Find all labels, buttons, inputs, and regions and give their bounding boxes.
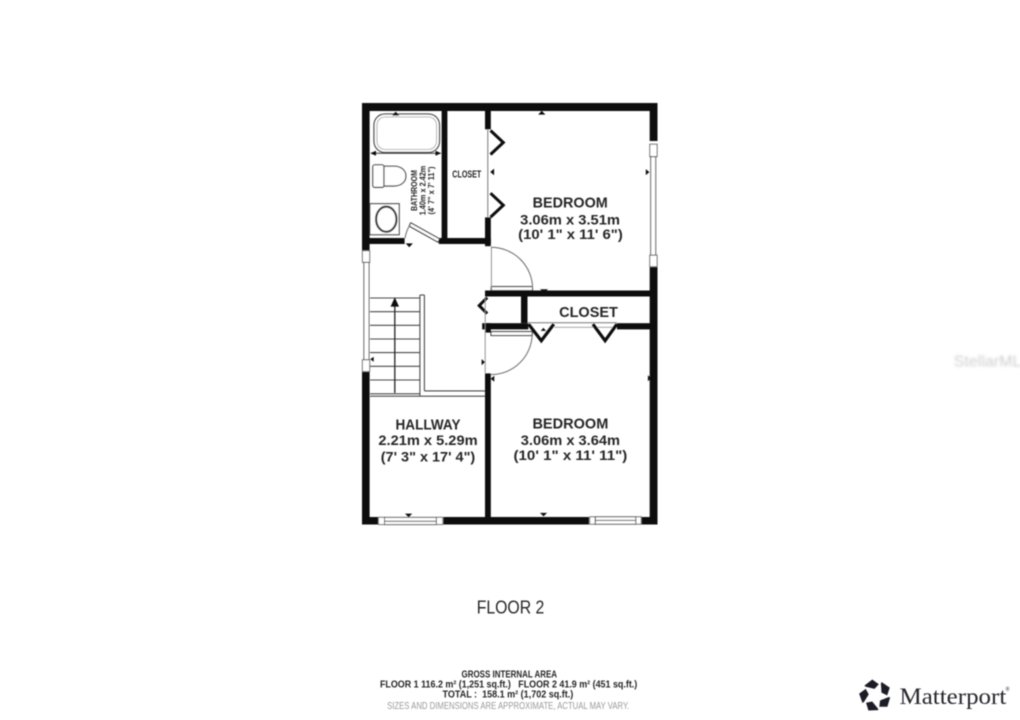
svg-text:2.21m x 5.29m: 2.21m x 5.29m	[378, 433, 477, 448]
svg-text:StellarMLS: StellarMLS	[954, 354, 1020, 371]
svg-text:BEDROOM: BEDROOM	[533, 196, 608, 212]
svg-text:(7' 3" x 17' 4"): (7' 3" x 17' 4")	[381, 449, 476, 464]
svg-text:SIZES AND DIMENSIONS ARE APPRO: SIZES AND DIMENSIONS ARE APPROXIMATE, AC…	[387, 701, 629, 712]
svg-text:FLOOR 2: FLOOR 2	[477, 597, 545, 618]
svg-text:(4' 7" x 7' 11"): (4' 7" x 7' 11")	[427, 166, 436, 214]
svg-text:BATHROOM: BATHROOM	[409, 170, 419, 211]
svg-text:Matterport: Matterport	[900, 684, 1007, 709]
svg-text:3.06m x 3.51m: 3.06m x 3.51m	[520, 212, 620, 227]
svg-text:®: ®	[1005, 686, 1010, 693]
svg-text:CLOSET: CLOSET	[559, 304, 618, 321]
svg-text:BEDROOM: BEDROOM	[532, 417, 608, 433]
svg-text:HALLWAY: HALLWAY	[396, 418, 461, 434]
svg-text:CLOSET: CLOSET	[452, 170, 481, 181]
svg-text:(10' 1" x 11' 6"): (10' 1" x 11' 6")	[518, 227, 623, 242]
svg-text:(10' 1" x 11' 11"): (10' 1" x 11' 11")	[514, 448, 628, 463]
svg-text:TOTAL : 158.1 m² (1,702 sq.ft: TOTAL : 158.1 m² (1,702 sq.ft.)	[443, 690, 574, 701]
svg-text:3.06m x 3.64m: 3.06m x 3.64m	[521, 433, 620, 448]
